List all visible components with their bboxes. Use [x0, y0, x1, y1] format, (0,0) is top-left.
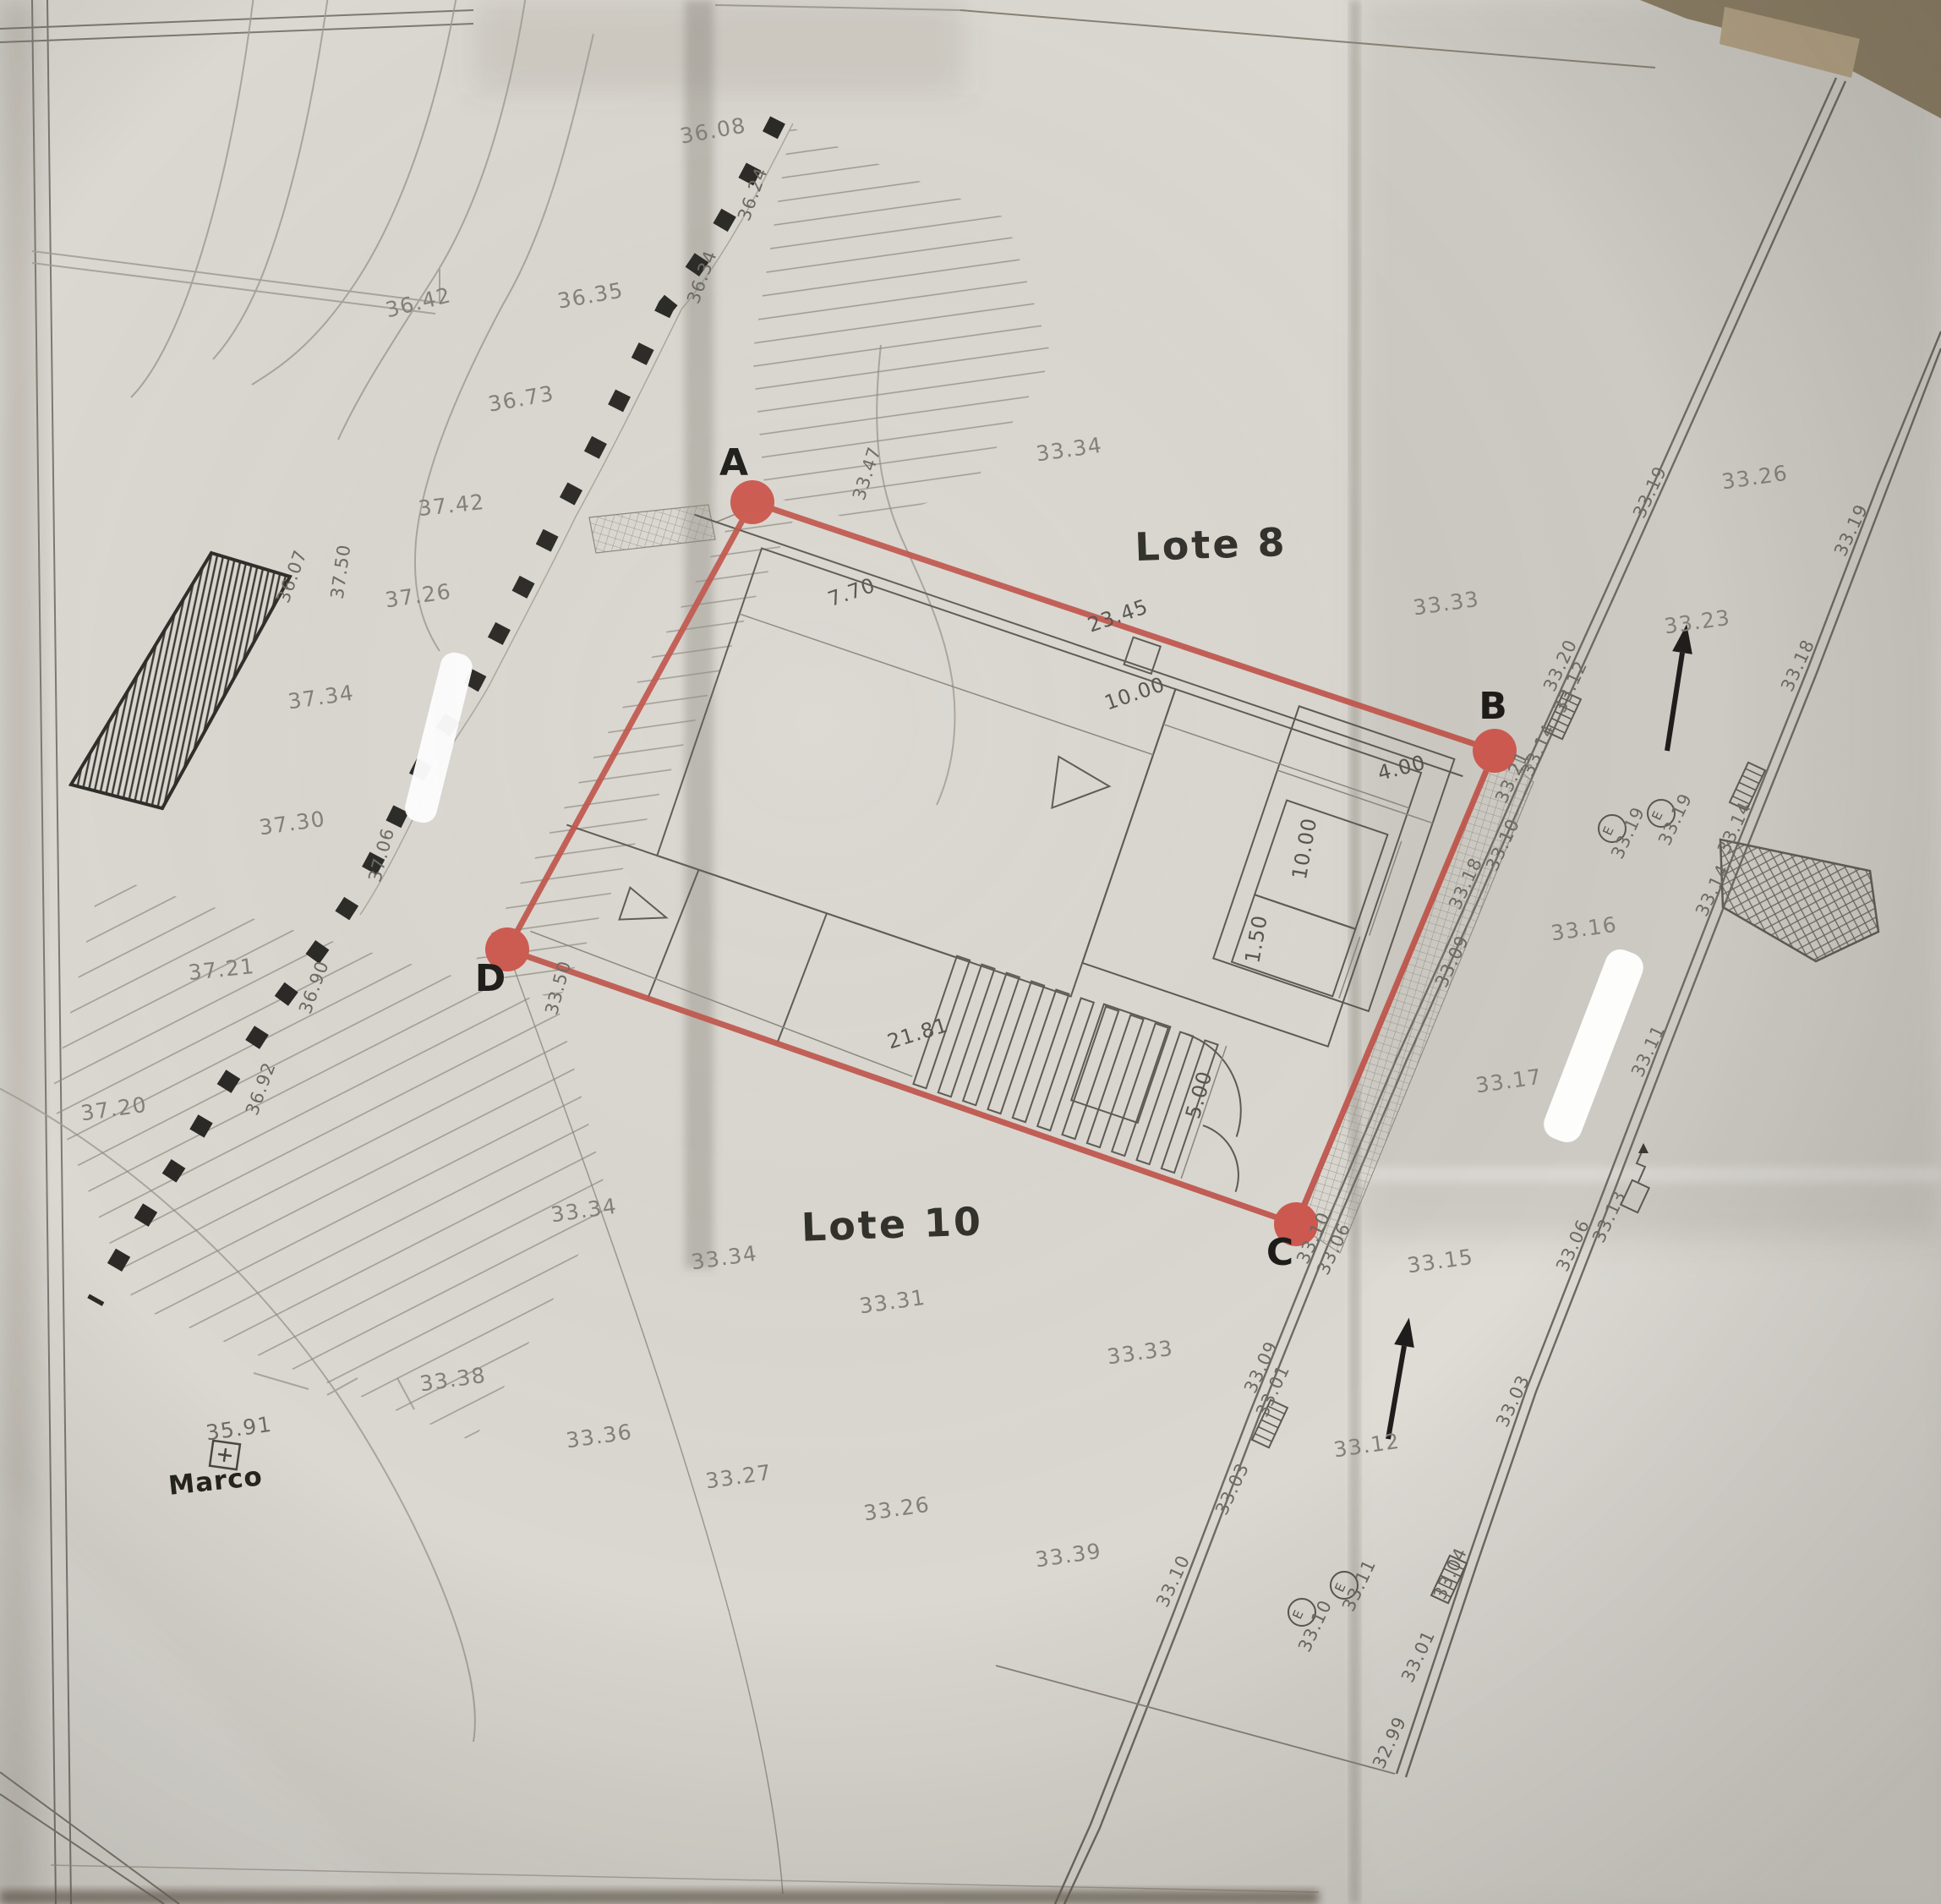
photo-vignette: [0, 0, 1941, 1904]
site-plan-drawing: EEEE ABCD 36.0836.4236.3536.7337.4237.26…: [0, 0, 1941, 1904]
photo-of-site-plan: EEEE ABCD 36.0836.4236.3536.7337.4237.26…: [0, 0, 1941, 1904]
